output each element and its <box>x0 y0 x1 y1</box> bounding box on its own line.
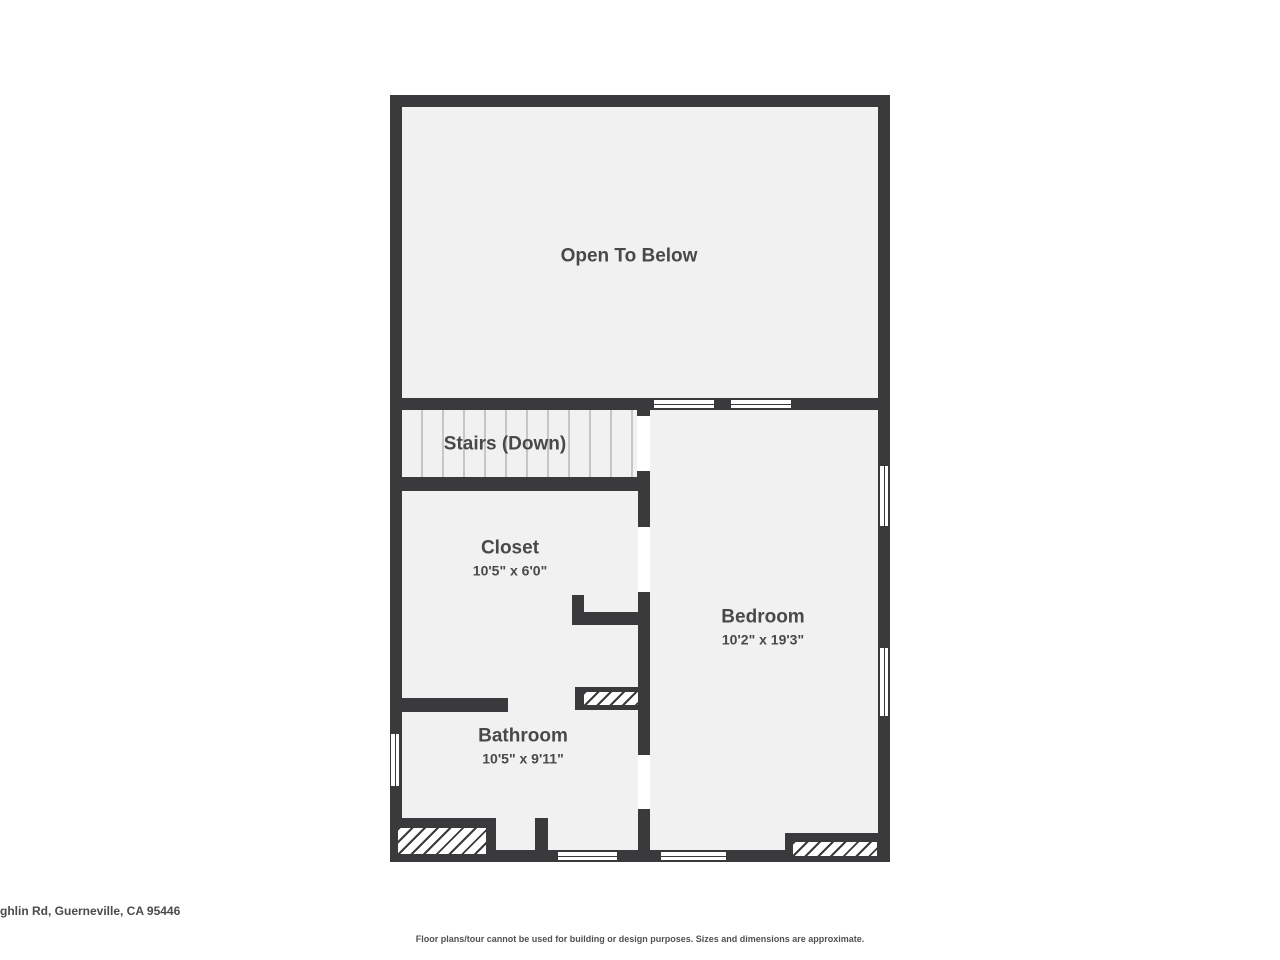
door-opening-bathroom-bedroom <box>638 755 650 809</box>
window <box>660 851 727 861</box>
room-dimensions: 10'5" x 6'0" <box>473 560 547 580</box>
room-label-bathroom: Bathroom 10'5" x 9'11" <box>478 725 568 768</box>
hatch-pattern <box>584 692 638 705</box>
room-name: Bedroom <box>721 606 804 629</box>
room-label-closet: Closet 10'5" x 6'0" <box>473 537 547 580</box>
floor-plan: Open To Below Stairs (Down) Closet 10'5"… <box>390 95 890 862</box>
hatch-pattern <box>793 842 877 856</box>
window <box>879 647 889 717</box>
window <box>730 399 792 409</box>
hatch-pattern <box>398 828 486 854</box>
address-text: ghlin Rd, Guerneville, CA 95446 <box>0 904 180 918</box>
page: Open To Below Stairs (Down) Closet 10'5"… <box>0 0 1280 960</box>
window <box>653 399 715 409</box>
room-label-bedroom: Bedroom 10'2" x 19'3" <box>721 606 804 649</box>
room-name: Bathroom <box>478 725 568 748</box>
room-label-stairs: Stairs (Down) <box>444 434 566 457</box>
hatched-fixture-closet-shelf <box>575 687 647 710</box>
hatched-fixture-bathroom <box>390 818 496 862</box>
room-name: Closet <box>473 537 547 560</box>
hatched-fixture-bedroom <box>785 833 885 862</box>
room-name: Stairs (Down) <box>444 434 566 457</box>
door-opening-stairs-bedroom <box>637 416 650 471</box>
window <box>879 465 889 527</box>
room-name: Open To Below <box>561 246 698 269</box>
window <box>557 851 618 861</box>
room-dimensions: 10'2" x 19'3" <box>721 629 804 649</box>
wall-bathroom-bottom-stub <box>535 818 548 862</box>
room-label-open-to-below: Open To Below <box>561 246 698 269</box>
door-opening-closet-bedroom <box>638 527 650 592</box>
wall-bathroom-top <box>390 698 508 712</box>
wall-closet-horizontal <box>572 612 650 625</box>
disclaimer-text: Floor plans/tour cannot be used for buil… <box>416 934 865 944</box>
window <box>390 733 400 787</box>
room-dimensions: 10'5" x 9'11" <box>478 748 568 768</box>
